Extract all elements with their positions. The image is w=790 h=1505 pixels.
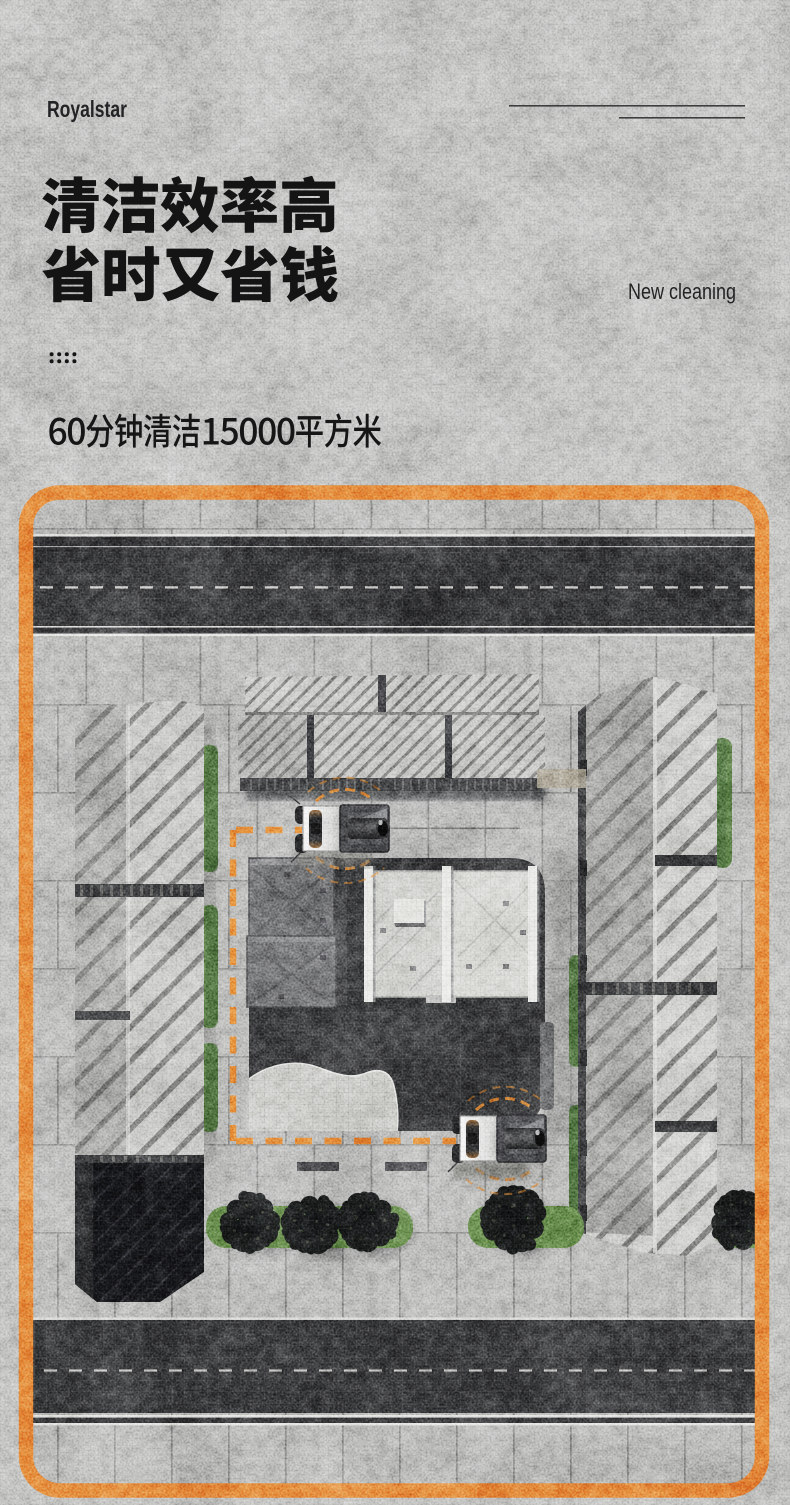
svg-text:New cleaning: New cleaning bbox=[628, 279, 736, 304]
svg-text:Royalstar: Royalstar bbox=[47, 96, 127, 122]
